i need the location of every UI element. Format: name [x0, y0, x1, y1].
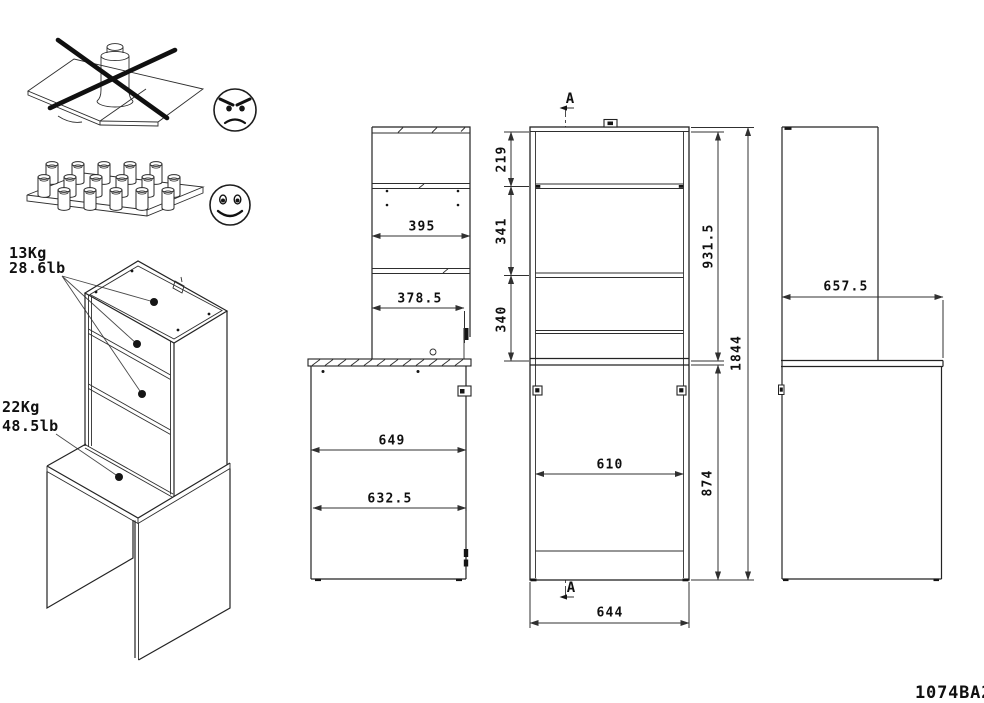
- dim-right-desk-depth: 657.5: [823, 280, 868, 295]
- dim-inner-width: 610: [596, 458, 623, 473]
- dim-desk-depth-outer: 649: [378, 434, 405, 449]
- dim-desk-height: 874: [701, 469, 716, 496]
- dim-top-shelf-gap: 219: [495, 145, 510, 172]
- dim-total-height: 1844: [730, 335, 745, 371]
- dim-desk-depth-inner: 632.5: [367, 492, 412, 507]
- section-a-top-label: A: [566, 91, 574, 107]
- dim-lower-shelf-gap: 340: [495, 305, 510, 332]
- shelf-load-lb-label: 28.6lb: [9, 259, 66, 277]
- dim-lower-shelf-depth: 378.5: [397, 292, 442, 307]
- drawing-canvas: [0, 0, 984, 697]
- angry-face-icon: [214, 89, 256, 131]
- dim-middle-shelf-gap: 341: [495, 217, 510, 244]
- desktop-load-lb-label: 48.5lb: [2, 417, 59, 435]
- side-section-view: [308, 127, 471, 581]
- dim-outer-width: 644: [596, 606, 623, 621]
- isometric-view: [47, 261, 230, 660]
- happy-face-icon: [210, 185, 250, 225]
- concentrated-load-crossed-out-icon: [28, 40, 203, 126]
- desktop-load-kg-label: 22Kg: [2, 398, 40, 416]
- front-view: [504, 105, 754, 628]
- part-number: 1074BA2: [915, 683, 984, 703]
- furniture-technical-drawing: { "drawing": { "part_number": "1074BA2",…: [0, 0, 984, 697]
- dim-hutch-height: 931.5: [702, 223, 717, 268]
- section-a-bottom-label: A: [567, 580, 575, 596]
- dim-shelf-depth: 395: [408, 220, 435, 235]
- distributed-load-icon: [27, 162, 203, 216]
- right-side-view: [779, 127, 944, 581]
